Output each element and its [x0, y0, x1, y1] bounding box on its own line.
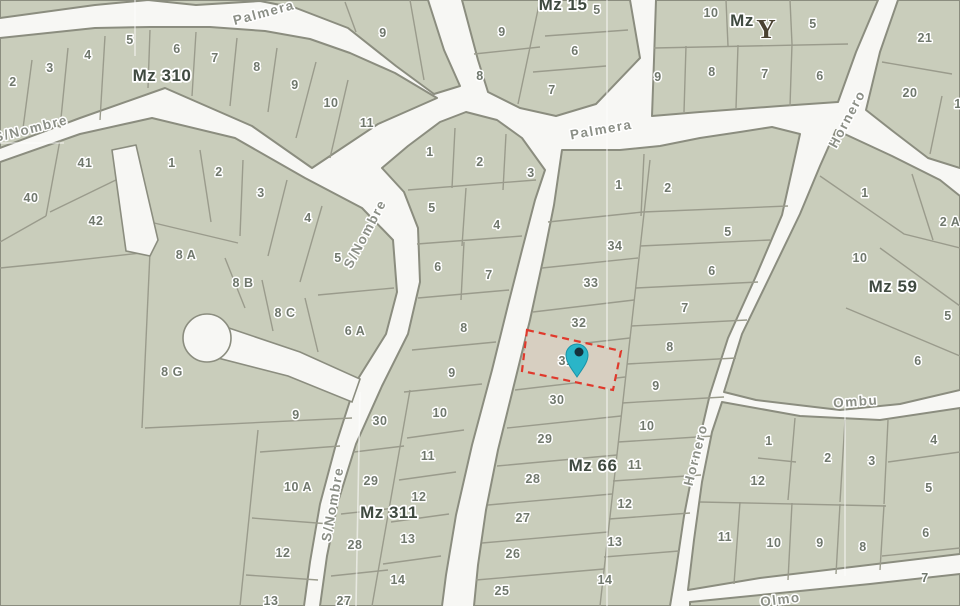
parcel-label: 28: [348, 538, 363, 552]
parcel-label: 2 A: [940, 215, 960, 229]
parcel-label: 29: [364, 474, 379, 488]
parcel-label: 1: [861, 186, 868, 200]
parcel-label: 25: [495, 584, 510, 598]
parcel-label: 1: [954, 97, 960, 111]
parcel-label: 10: [640, 419, 655, 433]
parcel-label: 10: [324, 96, 339, 110]
parcel-label: 5: [809, 17, 816, 31]
block-label: Mz 66: [569, 456, 618, 475]
parcel-label: 6: [914, 354, 921, 368]
parcel-label: 3: [868, 454, 875, 468]
parcel-label: 3: [46, 61, 53, 75]
street-label: Ombu: [833, 392, 879, 410]
parcel-label: 11: [360, 116, 374, 130]
map-canvas[interactable]: 234567891011Mz 310998567Mz 151059876Mz21…: [0, 0, 960, 606]
parcel-label: 8 A: [176, 248, 197, 262]
block-label: Mz 310: [133, 66, 192, 85]
parcel-label: 8: [859, 540, 866, 554]
block-label: Mz 59: [869, 277, 918, 296]
parcel-label: 9: [652, 379, 659, 393]
parcel-label: 6 A: [345, 324, 366, 338]
parcel-label: 9: [292, 408, 299, 422]
parcel-label: 8: [708, 65, 715, 79]
parcel-label: 13: [608, 535, 623, 549]
parcel-label: 12: [276, 546, 291, 560]
parcel-label: 1: [615, 178, 622, 192]
parcel-label: 1: [765, 434, 772, 448]
parcel-label: 8 G: [161, 365, 183, 379]
parcel-label: 8 C: [275, 306, 296, 320]
parcel-label: 42: [89, 214, 104, 228]
parcel-label: 20: [903, 86, 918, 100]
parcel-label: 5: [944, 309, 951, 323]
parcel-label: 5: [428, 201, 435, 215]
parcel-label: 4: [493, 218, 500, 232]
parcel-label: 27: [337, 594, 352, 606]
parcel-label: 5: [126, 33, 133, 47]
block-label: Mz 311: [360, 503, 418, 522]
parcel-label: 2: [824, 451, 831, 465]
parcel-label: 8: [476, 69, 483, 83]
parcel-label: 10: [704, 6, 719, 20]
parcel-label: 10 A: [284, 480, 312, 494]
parcel-label: 13: [401, 532, 416, 546]
culdesac-bulb: [183, 314, 231, 362]
parcel-label: 14: [391, 573, 406, 587]
parcel-label: 9: [379, 26, 386, 40]
parcel-label: 9: [654, 70, 661, 84]
parcel-label: 27: [516, 511, 531, 525]
parcel-label: 29: [538, 432, 553, 446]
parcel-label: 2: [664, 181, 671, 195]
parcel-label: 7: [921, 571, 928, 585]
parcel-label: 3: [257, 186, 264, 200]
parcel-label: 4: [930, 433, 937, 447]
map-svg: 234567891011Mz 310998567Mz 151059876Mz21…: [0, 0, 960, 606]
parcel-label: 32: [572, 316, 587, 330]
parcel-label: 12: [751, 474, 766, 488]
parcel-label: 11: [421, 449, 435, 463]
parcel-label: 11: [628, 458, 642, 472]
parcel-label: 6: [434, 260, 441, 274]
parcel-label: 26: [506, 547, 521, 561]
parcel-label: 33: [584, 276, 599, 290]
tree-icon: Y: [756, 14, 776, 44]
parcel-label: 10: [767, 536, 782, 550]
parcel-label: 8: [460, 321, 467, 335]
parcel-label: 9: [816, 536, 823, 550]
parcel-label: 12: [412, 490, 427, 504]
parcel-label: 5: [925, 481, 932, 495]
parcel-label: 9: [498, 25, 505, 39]
parcel-label: 7: [485, 268, 492, 282]
parcel-label: 6: [571, 44, 578, 58]
parcel-label: 4: [304, 211, 311, 225]
parcel-label: 10: [853, 251, 868, 265]
parcel-label: 28: [526, 472, 541, 486]
parcel-label: 9: [448, 366, 455, 380]
parcel-label: 11: [718, 530, 732, 544]
parcel-label: 6: [708, 264, 715, 278]
parcel-label: 40: [24, 191, 39, 205]
parcel-label: 6: [173, 42, 180, 56]
parcel-label: 9: [291, 78, 298, 92]
parcel-label: 41: [78, 156, 93, 170]
parcel-label: 34: [608, 239, 623, 253]
parcel-label: 3: [527, 166, 534, 180]
parcel-label: 2: [9, 75, 16, 89]
block-label: Mz 15: [539, 0, 588, 14]
parcel-label: 7: [681, 301, 688, 315]
parcel-label: 2: [476, 155, 483, 169]
block-label: Mz: [730, 11, 754, 30]
parcel-label: 5: [724, 225, 731, 239]
parcel-label: 7: [211, 51, 218, 65]
parcel-label: 7: [761, 67, 768, 81]
parcel-label: 30: [550, 393, 565, 407]
parcel-label: 10: [433, 406, 448, 420]
parcel-label: 21: [918, 31, 933, 45]
pin-center-dot: [575, 348, 584, 357]
parcel-label: 13: [264, 594, 279, 606]
parcel-label: 14: [598, 573, 613, 587]
parcel-label: 1: [168, 156, 175, 170]
parcel-label: 6: [922, 526, 929, 540]
parcel-label: 4: [84, 48, 91, 62]
parcel-label: 8: [666, 340, 673, 354]
parcel-label: 2: [215, 165, 222, 179]
parcel-label: 8: [253, 60, 260, 74]
parcel-label: 7: [548, 83, 555, 97]
parcel-label: 30: [373, 414, 388, 428]
parcel-label: 12: [618, 497, 633, 511]
parcel-label: 1: [426, 145, 433, 159]
parcel-label: 8 B: [233, 276, 254, 290]
parcel-label: 6: [816, 69, 823, 83]
parcel-label: 5: [593, 3, 600, 17]
